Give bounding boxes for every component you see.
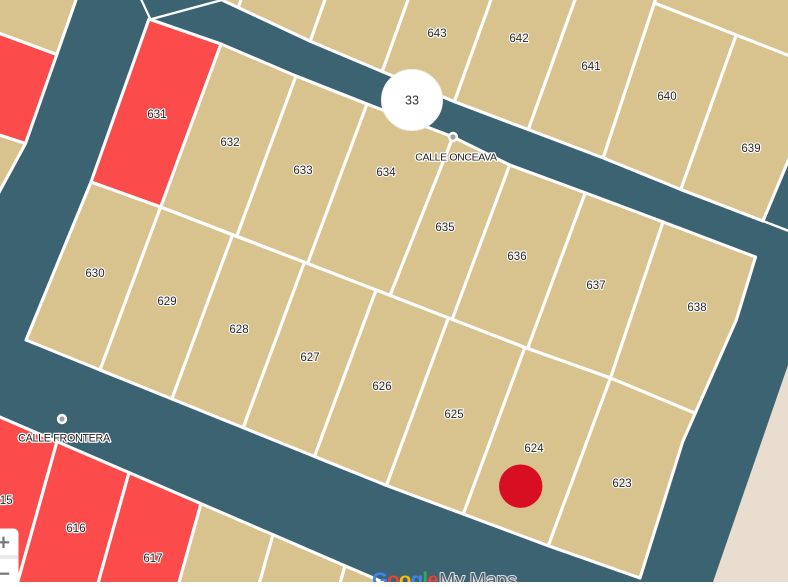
svg-text:624: 624	[524, 443, 544, 455]
svg-text:626: 626	[372, 381, 391, 393]
svg-text:623: 623	[612, 478, 631, 490]
svg-text:617: 617	[143, 553, 162, 565]
svg-text:641: 641	[581, 61, 600, 73]
svg-text:630: 630	[85, 268, 104, 280]
svg-text:CALLE ONCEAVA: CALLE ONCEAVA	[415, 152, 497, 164]
svg-text:632: 632	[220, 137, 239, 149]
svg-text:642: 642	[509, 33, 528, 45]
svg-text:637: 637	[586, 280, 605, 292]
svg-text:635: 635	[435, 222, 454, 234]
svg-text:638: 638	[687, 302, 706, 314]
svg-text:627: 627	[300, 352, 319, 364]
svg-text:My Maps: My Maps	[439, 570, 517, 583]
svg-text:631: 631	[147, 109, 166, 121]
svg-text:629: 629	[157, 296, 176, 308]
svg-text:625: 625	[444, 409, 463, 421]
svg-text:636: 636	[507, 251, 526, 263]
svg-text:CALLE FRONTERA: CALLE FRONTERA	[18, 433, 111, 445]
svg-text:33: 33	[405, 94, 419, 108]
svg-text:643: 643	[427, 28, 446, 40]
svg-text:639: 639	[741, 143, 760, 155]
svg-text:634: 634	[376, 167, 396, 179]
svg-text:628: 628	[229, 324, 248, 336]
svg-text:616: 616	[66, 523, 85, 535]
svg-text:640: 640	[657, 91, 676, 103]
svg-text:633: 633	[293, 165, 312, 177]
svg-text:615: 615	[0, 495, 13, 507]
svg-text:Google: Google	[372, 569, 438, 583]
